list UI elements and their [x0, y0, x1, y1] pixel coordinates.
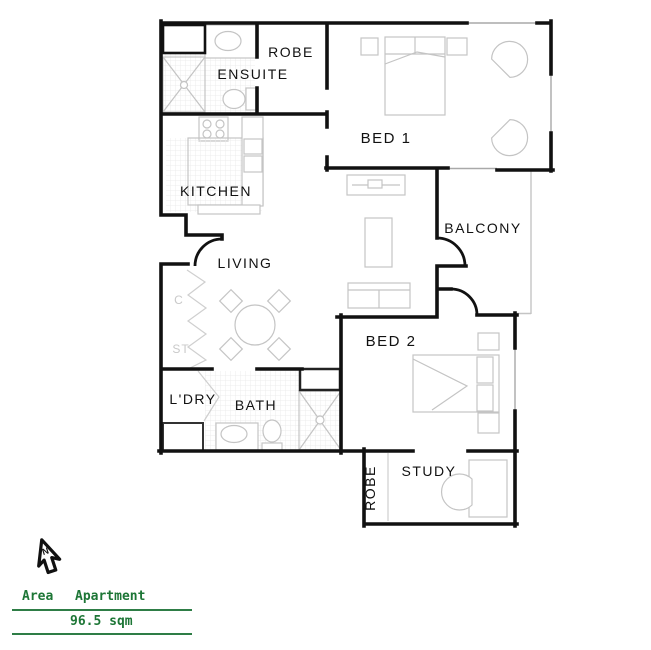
washer-icon	[163, 423, 203, 451]
bath-vanity-icon	[216, 423, 258, 450]
desk-chair-icon	[442, 474, 472, 510]
ensuite-toilet-icon	[223, 88, 256, 110]
desk-icon	[469, 460, 507, 517]
legend-table: Area Apartment 96.5 sqm	[12, 589, 192, 638]
room-label-robe1: ROBE	[268, 44, 314, 60]
bath-cabinet-icon	[300, 369, 340, 390]
legend-area-header: Area	[22, 589, 75, 604]
balcony-door-arc	[437, 238, 465, 266]
legend-apartment-header: Apartment	[75, 589, 145, 604]
legend-divider-bottom	[12, 633, 192, 635]
legend-divider-top	[12, 609, 192, 611]
north-arrow-icon: N	[22, 531, 72, 581]
sofa-icon	[348, 283, 410, 308]
bed2-door-arc	[451, 289, 477, 315]
closet-label-c: C	[174, 293, 184, 307]
room-label-kitchen: KITCHEN	[180, 183, 252, 199]
bed1-chair-icon	[488, 34, 535, 81]
ensuite-vanity-icon	[205, 25, 257, 58]
legend-area-value: 96.5 sqm	[70, 614, 192, 629]
bath-shower-icon	[299, 391, 341, 450]
room-label-bed2: BED 2	[366, 333, 417, 350]
ensuite-shower-icon	[163, 57, 205, 112]
dining-set-icon	[220, 290, 291, 361]
bed1-furniture	[361, 37, 467, 115]
closet-label-st: ST	[172, 342, 189, 356]
linen-closet	[163, 25, 205, 53]
balcony-railing	[515, 171, 531, 314]
floorplan-page: ROBE ENSUITE BED 1 KITCHEN BALCONY LIVIN…	[0, 0, 651, 650]
room-label-bed1: BED 1	[361, 130, 412, 147]
floor-plan-drawing: ROBE ENSUITE BED 1 KITCHEN BALCONY LIVIN…	[0, 0, 651, 650]
coffee-table-icon	[365, 218, 392, 267]
bed1-chair2-icon	[488, 116, 535, 163]
tv-unit-icon	[347, 175, 405, 195]
room-label-study: STUDY	[402, 463, 457, 479]
room-label-ensuite: ENSUITE	[217, 66, 288, 82]
bath-toilet-icon	[262, 420, 282, 451]
kitchen-stove-icon	[199, 117, 228, 141]
windows	[448, 23, 551, 411]
room-label-ldry: L'DRY	[169, 391, 216, 407]
room-label-living: LIVING	[218, 255, 273, 271]
bed2-furniture	[413, 333, 499, 433]
room-label-balcony: BALCONY	[444, 220, 521, 236]
door-arcs	[195, 238, 477, 315]
room-label-bath: BATH	[235, 397, 277, 413]
room-label-robe2: ROBE	[362, 465, 378, 511]
closet-bifold-icon	[187, 270, 206, 368]
